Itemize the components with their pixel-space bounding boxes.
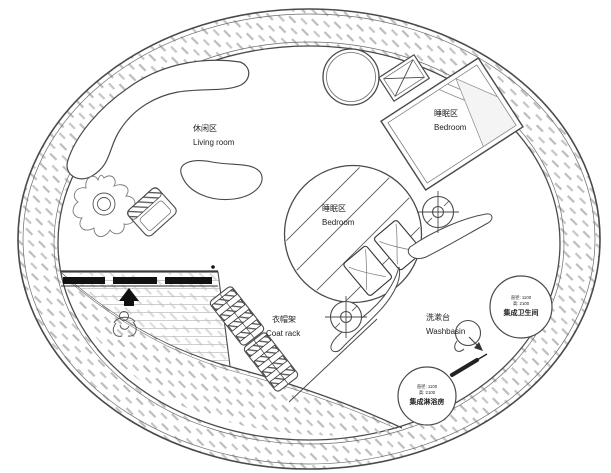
step-arrow bbox=[452, 354, 487, 375]
living-room-label-zh: 休闲区 bbox=[193, 123, 217, 133]
bedroom-upper-label-en: Bedroom bbox=[434, 123, 467, 132]
bedroom-center-label-zh: 睡眠区 bbox=[322, 204, 346, 213]
shower-pod: 直径: 1100 高: 2100 集成淋浴房 bbox=[398, 367, 456, 425]
armchair bbox=[126, 186, 178, 238]
shower-pod-name: 集成淋浴房 bbox=[409, 397, 445, 406]
wall-end-dot bbox=[211, 265, 215, 269]
shower-pod-height: 高: 2100 bbox=[419, 389, 436, 396]
bathroom-pod-name: 集成卫生间 bbox=[503, 308, 539, 317]
shower-pod-diameter: 直径: 1100 bbox=[417, 383, 438, 389]
living-room-label-en: Living room bbox=[193, 138, 235, 147]
floor-plan-svg: 直径: 1100 高: 2100 集成卫生间 直径: 1100 高: 2100 … bbox=[0, 0, 611, 473]
washbasin-label-zh: 洗漱台 bbox=[426, 312, 450, 322]
bedroom-upper-label-zh: 睡眠区 bbox=[434, 109, 458, 118]
bedroom-center-label-en: Bedroom bbox=[322, 218, 355, 227]
curved-sofa bbox=[67, 60, 249, 179]
coat-rack-label-zh: 衣帽架 bbox=[272, 314, 296, 324]
partition-line bbox=[289, 319, 377, 402]
coat-rack-label-en: Coat rack bbox=[266, 329, 301, 338]
bathroom-pod-height: 高: 2100 bbox=[513, 300, 530, 307]
round-table bbox=[323, 49, 379, 105]
bathroom-pod: 直径: 1100 高: 2100 集成卫生间 bbox=[490, 276, 552, 338]
washbasin-label-en: Washbasin bbox=[426, 327, 465, 336]
floor-plan-screenshot: 直径: 1100 高: 2100 集成卫生间 直径: 1100 高: 2100 … bbox=[0, 0, 611, 473]
bathroom-pod-diameter: 直径: 1100 bbox=[511, 294, 532, 300]
kidney-coffee-table bbox=[181, 161, 262, 200]
potted-plant-icon bbox=[73, 175, 135, 236]
